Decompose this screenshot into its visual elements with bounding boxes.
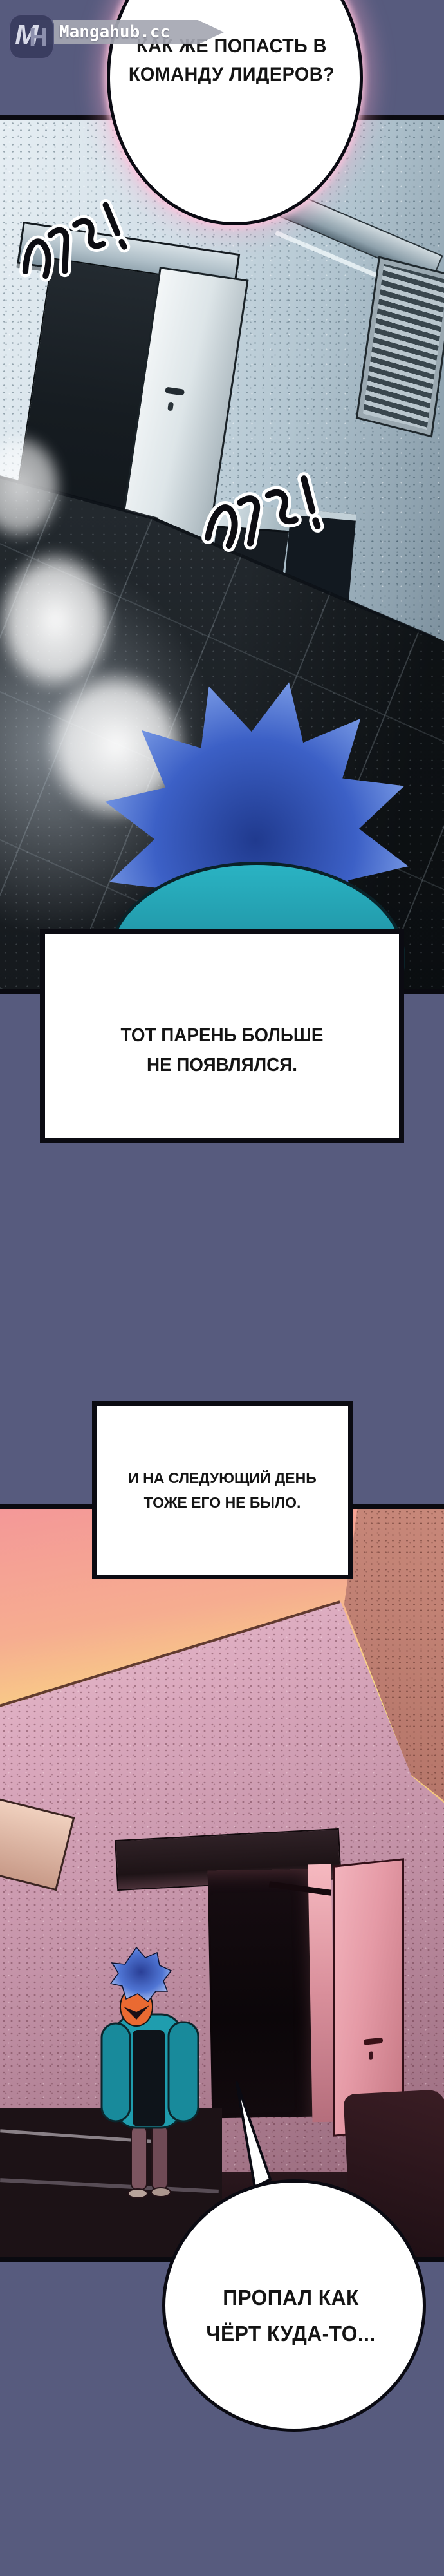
door-handle [364,2038,383,2045]
manhwa-page: КАК ЖЕ ПОПАСТЬ В КОМАНДУ ЛИДЕРОВ? ТОТ ПА… [0,0,444,2576]
black-shirt [133,2030,165,2126]
protagonist-standing [97,1945,203,2202]
speech-line: КОМАНДУ ЛИДЕРОВ? [112,61,351,89]
jacket-right-arm [169,2022,198,2121]
watermark-logo: M H [9,14,54,59]
watermark-banner: Mangahub.cc [37,20,224,44]
door-keyhole [167,401,174,411]
jacket-left-arm [102,2023,130,2121]
narration-line: НЕ ПОЯВЛЯЛСЯ. [121,1050,324,1080]
watermark-site-text: Mangahub.cc [59,23,170,42]
right-shoe [151,2188,171,2197]
door-handle [165,386,185,395]
narration-box-1: ТОТ ПАРЕНЬ БОЛЬШЕ НЕ ПОЯВЛЯЛСЯ. [40,929,404,1143]
narration-text: И НА СЛЕДУЮЩИЙ ДЕНЬ ТОЖЕ ЕГО НЕ БЫЛО. [128,1466,317,1515]
narration-text: ТОТ ПАРЕНЬ БОЛЬШЕ НЕ ПОЯВЛЯЛСЯ. [121,1021,324,1080]
narration-line: ТОТ ПАРЕНЬ БОЛЬШЕ [121,1021,324,1050]
watermark: Mangahub.cc M H [0,0,232,64]
narration-line: И НА СЛЕДУЮЩИЙ ДЕНЬ [128,1466,317,1490]
panel-rooftop-night [0,115,444,994]
panel-rooftop-sunset [0,1504,444,2262]
watermark-logo-letter-h: H [29,23,48,52]
sfx-creak-2-icon [192,464,330,573]
speech-bubble-bottom-text: ПРОПАЛ КАК ЧЁРТ КУДА-ТО... [174,2280,409,2352]
speech-line: ЧЁРТ КУДА-ТО... [174,2316,409,2352]
light-gap [308,1864,336,2123]
door-keyhole [369,2051,373,2060]
spiky-hair [111,1947,171,2002]
speech-line: ПРОПАЛ КАК [174,2280,409,2316]
narration-box-2: И НА СЛЕДУЮЩИЙ ДЕНЬ ТОЖЕ ЕГО НЕ БЫЛО. [92,1401,353,1579]
right-leg [152,2125,167,2190]
speech-bubble-tail [232,2079,277,2195]
left-leg [131,2126,147,2190]
left-shoe [128,2189,147,2198]
narration-line: ТОЖЕ ЕГО НЕ БЫЛО. [128,1490,317,1515]
